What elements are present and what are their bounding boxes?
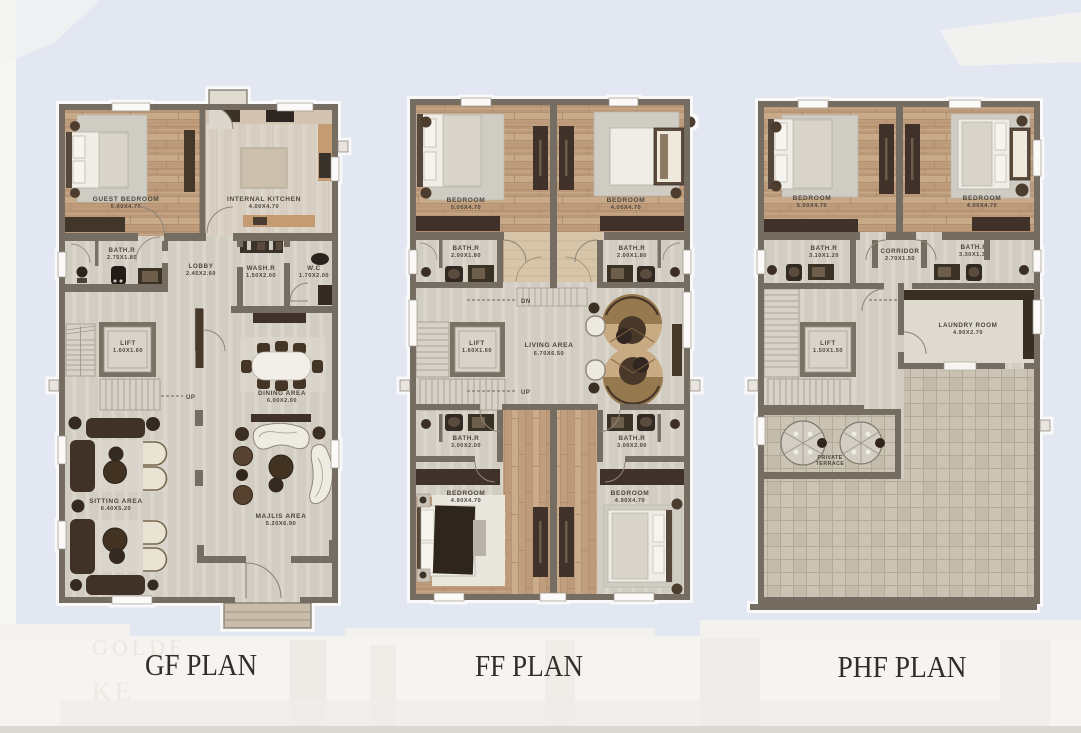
svg-text:2.00X1.80: 2.00X1.80 xyxy=(451,253,481,259)
svg-text:BATH.R: BATH.R xyxy=(453,435,480,442)
svg-text:2.45X2.60: 2.45X2.60 xyxy=(186,271,216,277)
svg-text:1.50X2.00: 1.50X2.00 xyxy=(246,273,276,279)
svg-text:BATH.R: BATH.R xyxy=(619,435,646,442)
svg-text:5.00X4.70: 5.00X4.70 xyxy=(797,203,827,209)
svg-text:LIFT: LIFT xyxy=(120,340,136,347)
svg-text:TERRACE: TERRACE xyxy=(816,461,845,467)
svg-text:2.75X1.80: 2.75X1.80 xyxy=(107,255,137,261)
svg-text:BEDROOM: BEDROOM xyxy=(607,197,646,204)
svg-text:LIVING AREA: LIVING AREA xyxy=(524,342,573,349)
svg-text:INTERNAL KITCHEN: INTERNAL KITCHEN xyxy=(227,196,301,203)
svg-text:3.10X1.20: 3.10X1.20 xyxy=(809,253,839,259)
svg-text:4.00X4.70: 4.00X4.70 xyxy=(249,204,279,210)
svg-text:BATH.R: BATH.R xyxy=(961,244,988,251)
svg-text:4.00X4.70: 4.00X4.70 xyxy=(611,205,641,211)
svg-text:FF PLAN: FF PLAN xyxy=(475,648,583,683)
svg-text:2.00X1.80: 2.00X1.80 xyxy=(617,253,647,259)
svg-text:6.40X5.20: 6.40X5.20 xyxy=(101,506,131,512)
svg-text:1.60X1.60: 1.60X1.60 xyxy=(462,348,492,354)
svg-text:BATH.R: BATH.R xyxy=(811,245,838,252)
svg-text:BATH.R: BATH.R xyxy=(109,247,136,254)
svg-text:WASH.R: WASH.R xyxy=(247,265,276,272)
svg-text:6.70X6.50: 6.70X6.50 xyxy=(534,351,564,357)
svg-text:5.00X4.70: 5.00X4.70 xyxy=(111,204,141,210)
svg-text:LAUNDRY ROOM: LAUNDRY ROOM xyxy=(939,322,998,329)
svg-text:BEDROOM: BEDROOM xyxy=(447,490,486,497)
svg-text:SITTING AREA: SITTING AREA xyxy=(89,498,142,505)
svg-text:LIFT: LIFT xyxy=(469,340,485,347)
svg-text:UP: UP xyxy=(186,395,195,401)
svg-text:BEDROOM: BEDROOM xyxy=(611,490,650,497)
svg-text:4.00X4.70: 4.00X4.70 xyxy=(967,203,997,209)
svg-text:4.90X2.70: 4.90X2.70 xyxy=(953,330,983,336)
svg-text:1.60X1.60: 1.60X1.60 xyxy=(113,348,143,354)
svg-text:2.70X1.50: 2.70X1.50 xyxy=(885,256,915,262)
svg-text:BATH.R: BATH.R xyxy=(453,245,480,252)
svg-text:PHF PLAN: PHF PLAN xyxy=(838,649,967,684)
svg-text:1.70X2.00: 1.70X2.00 xyxy=(299,273,329,279)
svg-text:W.C: W.C xyxy=(307,265,321,272)
svg-text:BEDROOM: BEDROOM xyxy=(963,195,1002,202)
svg-text:BEDROOM: BEDROOM xyxy=(793,195,832,202)
svg-text:1.50X1.50: 1.50X1.50 xyxy=(813,348,843,354)
svg-text:MAJLIS AREA: MAJLIS AREA xyxy=(255,513,306,520)
svg-text:4.90X4.70: 4.90X4.70 xyxy=(615,498,645,504)
svg-text:5.20X6.90: 5.20X6.90 xyxy=(266,521,296,527)
svg-text:KE: KE xyxy=(92,677,135,706)
svg-text:CORRIDOR: CORRIDOR xyxy=(880,248,919,255)
svg-text:4.90X4.70: 4.90X4.70 xyxy=(451,498,481,504)
svg-text:5.00X4.70: 5.00X4.70 xyxy=(451,205,481,211)
svg-text:UP: UP xyxy=(521,390,530,396)
svg-text:DINING AREA: DINING AREA xyxy=(258,390,306,397)
svg-text:BATH.R: BATH.R xyxy=(619,245,646,252)
svg-text:LIFT: LIFT xyxy=(820,340,836,347)
svg-text:GUEST BEDROOM: GUEST BEDROOM xyxy=(93,196,160,203)
svg-text:BEDROOM: BEDROOM xyxy=(447,197,486,204)
svg-text:GF PLAN: GF PLAN xyxy=(145,647,257,682)
svg-text:LOBBY: LOBBY xyxy=(188,263,213,270)
svg-text:3.00X2.00: 3.00X2.00 xyxy=(451,443,481,449)
svg-text:6.00X2.00: 6.00X2.00 xyxy=(267,398,297,404)
svg-text:DN: DN xyxy=(521,299,531,305)
svg-text:3.00X2.00: 3.00X2.00 xyxy=(617,443,647,449)
